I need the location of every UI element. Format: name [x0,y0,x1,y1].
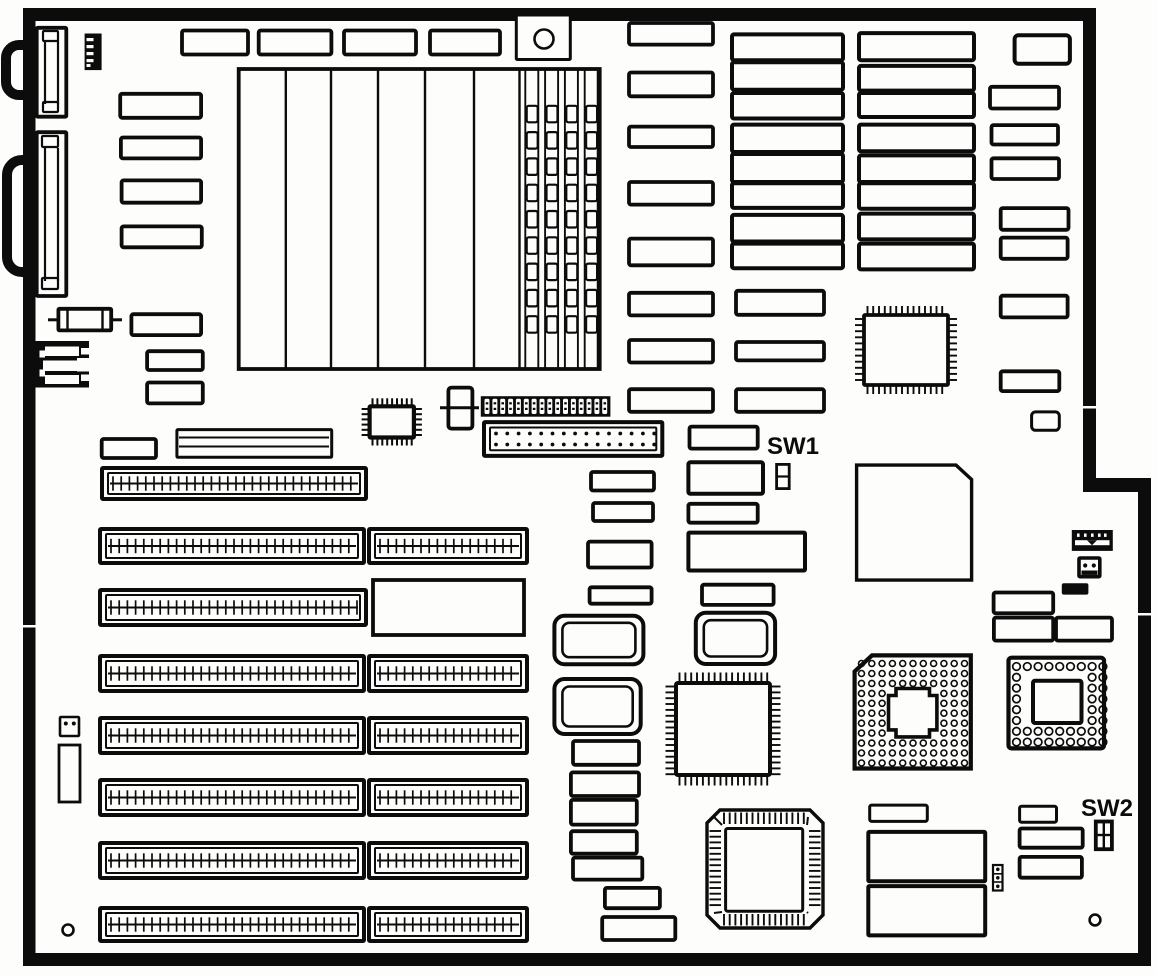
svg-text:SW1: SW1 [767,433,819,460]
svg-text:SW2: SW2 [1081,795,1133,822]
